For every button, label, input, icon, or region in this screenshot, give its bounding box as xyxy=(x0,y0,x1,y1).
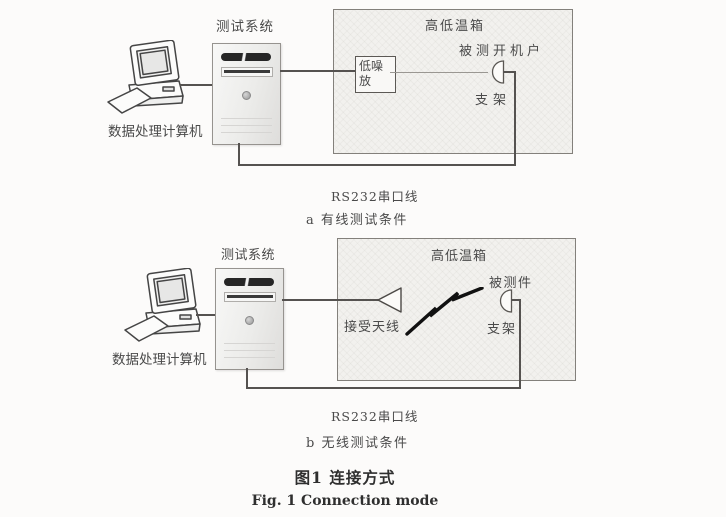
subcaption-b: b 无线测试条件 xyxy=(306,432,408,451)
dut-label-a: 被测开机户 xyxy=(459,40,544,59)
vent-lines-icon xyxy=(224,337,275,363)
bracket-label-b: 支架 xyxy=(487,318,517,337)
cable-computer-tower-b xyxy=(196,314,216,316)
cd-drive-slot-icon xyxy=(221,53,271,61)
computer-label-b: 数据处理计算机 xyxy=(112,348,207,368)
receive-antenna-icon xyxy=(377,287,403,314)
dut-label-b: 被测件 xyxy=(489,272,533,291)
cable-tower-lna-a xyxy=(280,70,356,72)
subcaption-a: a 有线测试条件 xyxy=(306,209,408,228)
power-button-icon xyxy=(242,91,251,100)
test-system-tower-a xyxy=(212,43,281,145)
vent-lines-icon xyxy=(221,112,272,138)
rs232-cable-b-seg3 xyxy=(246,387,521,389)
cable-computer-tower-a xyxy=(180,84,213,86)
figure-connection-mode: 高低温箱 数据处理计算机 测试系统 低噪 放 xyxy=(0,0,726,517)
serial-label-a: RS232串口线 xyxy=(331,186,418,205)
chamber-label-b: 高低温箱 xyxy=(431,245,487,264)
data-processing-computer-icon xyxy=(105,40,195,122)
test-system-label-b: 测试系统 xyxy=(221,244,275,263)
cable-lna-dut-a xyxy=(390,72,488,73)
power-button-icon xyxy=(245,316,254,325)
caption-chinese: 图1 连接方式 xyxy=(245,466,445,488)
wireless-link-lightning-icon xyxy=(405,287,485,337)
cd-drive-slot-icon xyxy=(224,278,274,286)
lna-label-line1: 低噪 xyxy=(359,59,392,74)
rs232-cable-a-seg2 xyxy=(514,71,516,166)
data-processing-computer-icon-b xyxy=(122,268,212,350)
test-system-label-a: 测试系统 xyxy=(216,15,274,35)
antenna-label-b: 接受天线 xyxy=(344,316,400,335)
caption-english: Fig. 1 Connection mode xyxy=(245,493,445,509)
dut-horn-icon-b xyxy=(495,289,513,313)
lna-box: 低噪 放 xyxy=(355,56,396,93)
chamber-label-a: 高低温箱 xyxy=(425,15,485,34)
figure-caption: 图1 连接方式 Fig. 1 Connection mode xyxy=(245,466,445,509)
serial-label-b: RS232串口线 xyxy=(331,406,418,425)
rs232-cable-a-seg4 xyxy=(238,143,240,166)
drive-slot-icon xyxy=(221,67,273,77)
drive-slot-icon xyxy=(224,292,276,302)
test-system-tower-b xyxy=(215,268,284,370)
rs232-cable-b-seg4 xyxy=(246,368,248,389)
cable-tower-antenna-b xyxy=(282,299,379,301)
rs232-cable-a-seg3 xyxy=(238,164,516,166)
lna-label-line2: 放 xyxy=(359,74,392,89)
computer-label-a: 数据处理计算机 xyxy=(108,120,203,140)
rs232-cable-b-seg2 xyxy=(519,299,521,389)
bracket-label-a: 支架 xyxy=(475,89,511,108)
